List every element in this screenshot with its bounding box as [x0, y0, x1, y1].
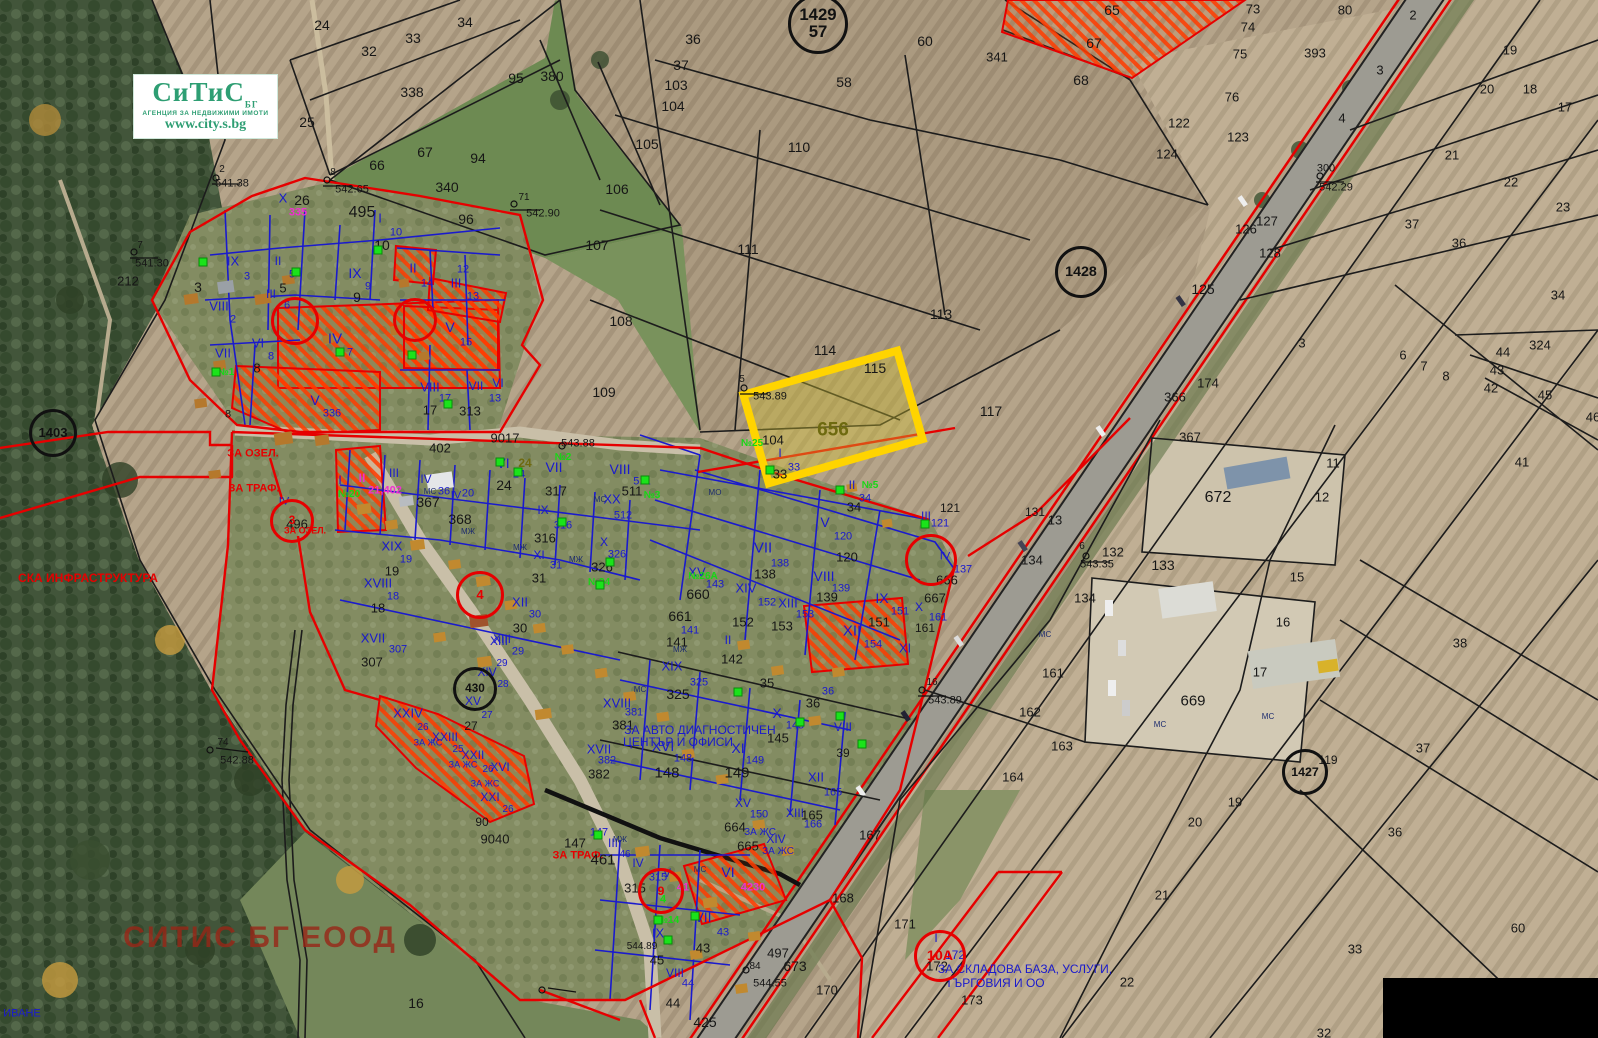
watermark-text: СИТИС БГ ЕООД — [123, 921, 397, 955]
redacted-block — [1383, 978, 1598, 1038]
map-linework — [0, 0, 1598, 1038]
survey-marker — [796, 718, 805, 727]
survey-marker — [654, 916, 663, 925]
agency-logo-tagline: АГЕНЦИЯ ЗА НЕДВИЖИМИ ИМОТИ — [142, 110, 268, 117]
survey-marker — [641, 476, 650, 485]
parcel-ref-number: 9 — [658, 885, 665, 897]
survey-marker — [594, 831, 603, 840]
agency-logo-url: www.city.s.bg — [165, 117, 246, 133]
survey-marker — [292, 268, 301, 277]
survey-marker — [496, 458, 505, 467]
parcel-ref-circle: 10А — [914, 930, 966, 982]
survey-marker — [921, 520, 930, 529]
parcel-ref-circle: 1403 — [29, 409, 77, 457]
survey-marker — [766, 466, 775, 475]
parcel-ref-circle — [905, 534, 957, 586]
parcel-ref-number: 1427 — [1291, 766, 1319, 778]
parcel-ref-circle — [393, 298, 437, 342]
survey-marker — [408, 351, 417, 360]
parcel-ref-circle: 1428 — [1055, 246, 1107, 298]
survey-marker — [596, 581, 605, 590]
parcel-ref-number: 1403 — [39, 426, 68, 439]
survey-marker — [734, 688, 743, 697]
parcel-ref-number: 57 — [809, 24, 828, 41]
survey-marker — [858, 740, 867, 749]
map-viewport[interactable]: СиТиСБГ АГЕНЦИЯ ЗА НЕДВИЖИМИ ИМОТИ www.c… — [0, 0, 1598, 1038]
parcel-ref-number: 4 — [476, 588, 483, 601]
survey-marker — [664, 936, 673, 945]
parcel-ref-number: 10А — [927, 949, 953, 963]
survey-marker — [336, 348, 345, 357]
survey-marker — [444, 400, 453, 409]
survey-marker — [836, 712, 845, 721]
parcel-ref-circle: 3 — [270, 499, 314, 543]
survey-marker — [514, 468, 523, 477]
parcel-ref-number: 430 — [465, 683, 485, 695]
survey-marker — [199, 258, 208, 267]
survey-marker — [558, 518, 567, 527]
agency-logo: СиТиСБГ АГЕНЦИЯ ЗА НЕДВИЖИМИ ИМОТИ www.c… — [133, 74, 278, 139]
agency-logo-suffix: БГ — [245, 100, 259, 110]
survey-marker — [836, 486, 845, 495]
parcel-ref-number: 3 — [289, 515, 296, 527]
survey-marker — [606, 558, 615, 567]
parcel-ref-number: 1428 — [1065, 265, 1097, 279]
agency-logo-title: СиТиСБГ — [152, 80, 258, 108]
parcel-ref-circle: 430 — [453, 667, 497, 711]
parcel-ref-circle: 1427 — [1282, 749, 1328, 795]
survey-marker — [691, 912, 700, 921]
survey-marker — [374, 246, 383, 255]
parcel-ref-circle — [271, 297, 319, 345]
parcel-ref-circle: 9 — [638, 868, 684, 914]
survey-marker — [212, 368, 221, 377]
parcel-ref-circle: 4 — [456, 571, 504, 619]
